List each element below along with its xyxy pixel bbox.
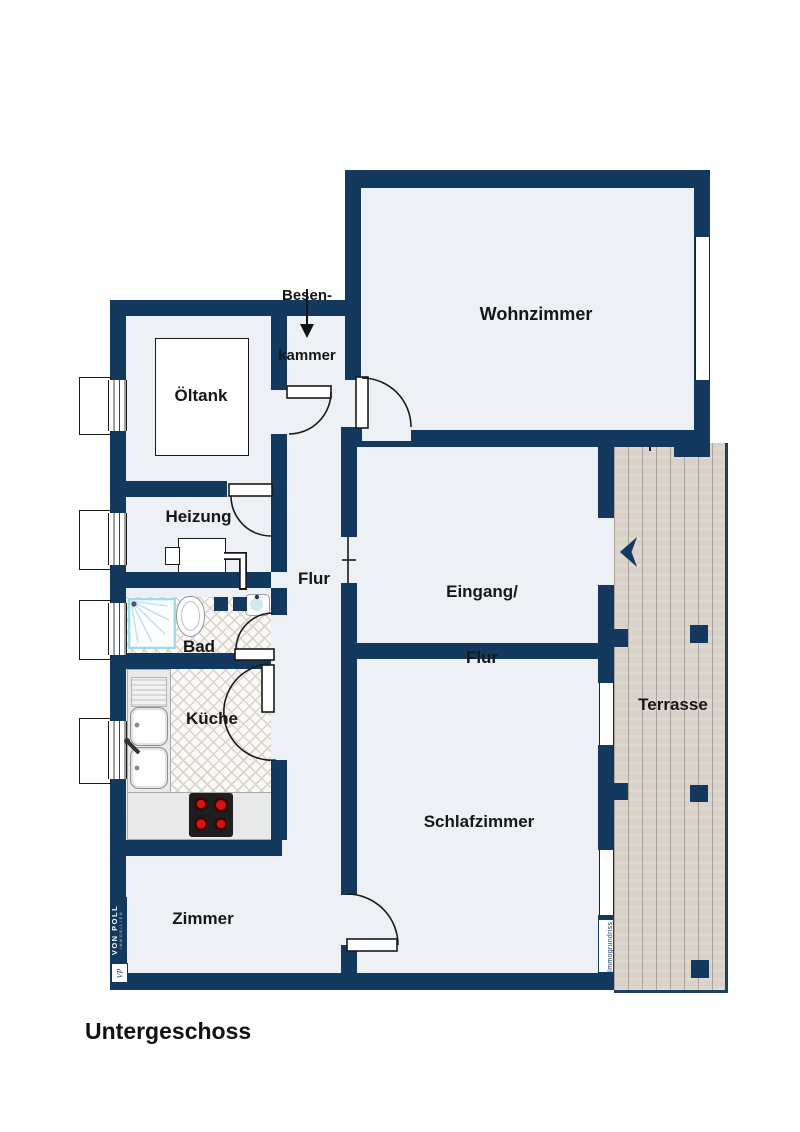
window — [599, 850, 614, 915]
wall-segment — [126, 481, 227, 497]
immogrundriss-strip: Immogrundriss — [599, 920, 613, 972]
window-box — [79, 377, 111, 435]
window — [108, 721, 127, 779]
vonpoll-monogram: VP — [115, 968, 124, 978]
floorplan-page: VON POLL IMMOBILIEN VP Immogrundriss Woh… — [0, 0, 800, 1132]
terrace-wall-stub — [614, 783, 628, 800]
kitchen-sink-icon — [130, 747, 168, 789]
terrace-post — [690, 785, 708, 802]
besenkammer-line2: kammer — [257, 346, 357, 366]
room-label-eingang: Eingang/ Flur — [407, 537, 557, 713]
window — [695, 237, 710, 380]
room-label-heizung: Heizung — [146, 506, 251, 528]
wall-segment — [341, 447, 357, 537]
room-label-bad: Bad — [169, 636, 229, 658]
wall-segment — [598, 659, 614, 683]
stove-icon — [189, 793, 233, 837]
room-label-besenkammer: Besen- kammer — [257, 246, 357, 406]
wall-segment — [411, 430, 694, 447]
wall-segment — [341, 659, 357, 895]
vonpoll-logo-strip: VON POLL IMMOBILIEN — [110, 897, 127, 963]
kitchen-drainboard — [131, 677, 167, 707]
room-label-flur: Flur — [284, 568, 344, 590]
door-threshold — [362, 441, 412, 447]
toilet-seat — [181, 601, 200, 631]
wall-segment — [110, 973, 614, 990]
wall-segment — [271, 588, 287, 615]
terrace-post — [691, 960, 709, 978]
wall-segment — [345, 170, 710, 188]
window-box — [79, 718, 111, 784]
room-label-oeltank: Öltank — [155, 385, 247, 407]
window — [108, 513, 127, 565]
wall-segment — [598, 430, 614, 518]
window — [599, 683, 614, 745]
room-label-wohnzimmer: Wohnzimmer — [436, 303, 636, 325]
window-box — [79, 510, 111, 570]
terrace-post — [690, 625, 708, 643]
window-box — [79, 600, 111, 660]
window — [108, 380, 127, 431]
room-label-schlafzimmer: Schlafzimmer — [379, 811, 579, 833]
wall-segment — [598, 745, 614, 850]
immogrundriss-credit: Immogrundriss — [607, 922, 614, 972]
wall-segment — [271, 497, 287, 572]
wall-segment — [271, 434, 287, 497]
eingang-line2: Flur — [407, 647, 557, 669]
wall-segment — [341, 583, 357, 643]
bath-pillar — [233, 597, 247, 611]
wall-segment — [126, 840, 282, 856]
wall-segment — [126, 572, 271, 588]
eingang-line1: Eingang/ — [407, 581, 557, 603]
besenkammer-line1: Besen- — [257, 286, 357, 306]
room-label-zimmer: Zimmer — [143, 908, 263, 930]
window — [108, 603, 127, 655]
room-label-kueche: Küche — [162, 708, 262, 730]
wall-segment — [271, 760, 287, 840]
terrace-deck — [614, 443, 728, 993]
vonpoll-logo-secondary: IMMOBILIEN — [119, 897, 124, 963]
heater-knob — [165, 547, 180, 565]
kitchen-tiles — [168, 669, 271, 792]
washbasin-bowl — [250, 598, 263, 611]
wall-segment — [598, 585, 614, 643]
bath-pillar — [214, 597, 228, 611]
wall-segment — [341, 945, 357, 973]
heater-icon — [178, 538, 226, 574]
room-label-terrasse: Terrasse — [618, 694, 728, 716]
wall-segment — [341, 427, 362, 447]
vonpoll-monogram-box: VP — [111, 963, 128, 983]
vonpoll-logo-primary: VON POLL — [110, 897, 119, 963]
terrace-wall-stub — [614, 629, 628, 647]
floor-title: Untergeschoss — [85, 1018, 251, 1045]
